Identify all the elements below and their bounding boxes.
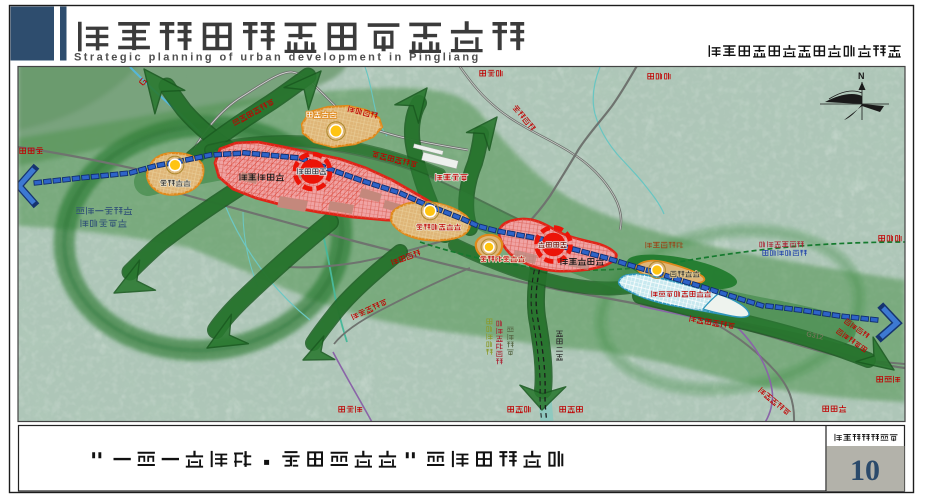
svg-text:10: 10: [850, 454, 880, 487]
svg-text:Strategic planning of urban de: Strategic planning of urban development …: [74, 52, 481, 64]
svg-text:N: N: [858, 71, 865, 81]
